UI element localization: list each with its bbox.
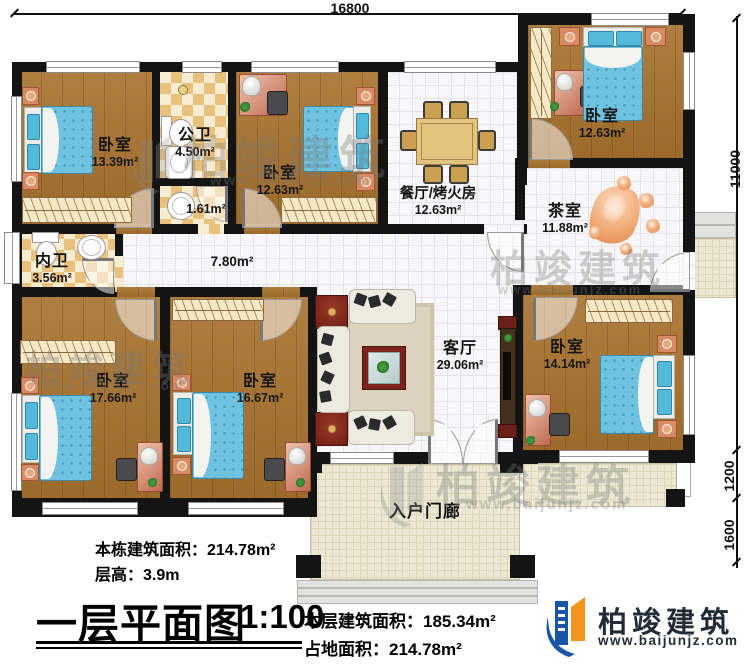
nightstand [559, 27, 580, 46]
pillow [27, 144, 40, 170]
nightstand [22, 172, 39, 190]
nightstand [21, 464, 39, 481]
desk-lamp [242, 76, 261, 96]
dimension-right-lower: 1600 [721, 505, 737, 565]
watermark-url: www.baijunjz.com [498, 282, 642, 297]
pillow [177, 398, 191, 424]
dimension-right-height: 11000 [727, 139, 743, 199]
porch-step [297, 596, 538, 604]
plant [296, 478, 305, 487]
window [42, 502, 138, 515]
plant [550, 102, 559, 111]
pillow [27, 114, 40, 140]
sink [77, 235, 106, 260]
step [690, 225, 736, 238]
sheet-fold [43, 108, 59, 172]
shower-knob [178, 85, 188, 95]
title-underline [36, 641, 302, 644]
throw-pillow [319, 390, 332, 403]
sheet-fold [194, 394, 211, 477]
room-label-bedroom-bm: 卧室16.67m² [221, 373, 299, 406]
room-label-bath-inner: 内卫3.56m² [24, 253, 80, 286]
logo-building-icon [541, 593, 593, 659]
wardrobe [530, 27, 552, 119]
nightstand [657, 335, 677, 353]
wardrobe [172, 299, 264, 321]
window [4, 232, 20, 284]
desk-chair [264, 458, 285, 481]
pillow [657, 389, 672, 415]
wall-segment [515, 158, 525, 220]
window [46, 61, 140, 73]
tv-cabinet-cap [498, 424, 517, 438]
pillow [588, 31, 614, 46]
plant [148, 478, 157, 487]
total-area-text: 本栋建筑面积：214.78m² [95, 536, 276, 560]
window [11, 96, 22, 182]
wardrobe [281, 197, 377, 223]
stone-decor [646, 219, 660, 233]
desk-lamp [288, 447, 306, 465]
room-label-corridor: 7.80m² [204, 254, 260, 270]
dining-chair [478, 130, 496, 151]
bed-headboard [173, 392, 193, 455]
pillow [657, 361, 672, 387]
window [251, 61, 339, 73]
door-opening [262, 287, 300, 297]
bed-mattress [39, 395, 92, 481]
porch-step [297, 588, 538, 596]
throw-pillow [368, 418, 381, 431]
window [404, 61, 496, 73]
bed-headboard [653, 355, 675, 419]
room-label-bedroom-tr: 卧室12.63m² [562, 108, 642, 141]
ground-area-text: 占地面积：214.78m² [304, 635, 462, 660]
wall-segment [683, 14, 695, 252]
room-label-tea: 茶室11.88m² [525, 203, 605, 236]
floor-area-text: 本层建筑面积：185.34m² [304, 607, 496, 632]
desk-lamp [140, 447, 158, 465]
plant [526, 436, 535, 445]
watermark-url: www.baijunjz.com [210, 172, 371, 189]
nightstand [356, 87, 375, 105]
dining-table [416, 118, 478, 165]
window [591, 13, 669, 26]
desk-chair [267, 91, 288, 115]
plant [240, 102, 250, 112]
stone-decor [617, 176, 631, 190]
room-label-bedroom-br: 卧室14.14m² [527, 339, 607, 372]
porch-pillar [510, 555, 535, 578]
pillow [616, 31, 642, 46]
pillow [25, 402, 38, 429]
floor-height-text: 层高：3.9m [95, 561, 179, 585]
tv [503, 352, 511, 400]
sheet-fold [585, 48, 641, 68]
bed-headboard [583, 27, 643, 47]
desk-chair [116, 458, 137, 481]
door-opening [198, 224, 224, 234]
floor-terrace-tea [690, 238, 736, 298]
window [182, 61, 222, 73]
room-label-living: 客厅29.06m² [420, 340, 500, 373]
logo-url: www.baijunjz.com [598, 633, 739, 648]
bed-mattress [600, 355, 654, 434]
desk-lamp [556, 73, 573, 91]
side-table [315, 412, 348, 446]
door-opening [117, 287, 155, 297]
dining-chair [449, 165, 469, 184]
side-table [315, 295, 348, 329]
sheet-fold [638, 357, 653, 432]
window [683, 52, 695, 110]
pillow [25, 433, 38, 460]
nightstand [172, 457, 191, 475]
dining-chair [423, 165, 443, 184]
porch-pillar [296, 555, 321, 578]
bed-headboard [24, 107, 42, 173]
desk-chair [549, 413, 570, 436]
title-underline [36, 647, 302, 649]
dimension-right-upper: 1200 [721, 446, 737, 506]
dimension-top-width: 16800 [315, 0, 385, 16]
plant [504, 334, 512, 342]
bed-headboard [22, 395, 40, 463]
terrace-pillar [666, 489, 685, 507]
stone-decor [639, 193, 654, 208]
desk-lamp [528, 399, 546, 417]
watermark-logo-icon [126, 132, 178, 196]
room-label-bath-small: 1.61m² [178, 202, 234, 216]
plant [377, 361, 389, 373]
wardrobe [585, 299, 673, 323]
floor-plan: 16800 11000 1200 1600 [0, 0, 750, 665]
pillow [177, 426, 191, 452]
nightstand [22, 87, 39, 105]
watermark-url: www.baijunjz.com [40, 378, 184, 393]
room-label-dining: 餐厅/烤火房12.63m² [383, 186, 493, 217]
sheet-fold [41, 397, 58, 479]
watermark-url: www.baijunjz.com [466, 496, 627, 513]
window [188, 502, 284, 515]
step [690, 212, 736, 225]
nightstand [645, 27, 666, 46]
porch-step [297, 580, 538, 588]
nightstand [657, 420, 677, 438]
window [683, 355, 695, 435]
watermark-logo-icon [374, 458, 432, 530]
wardrobe [22, 197, 132, 223]
